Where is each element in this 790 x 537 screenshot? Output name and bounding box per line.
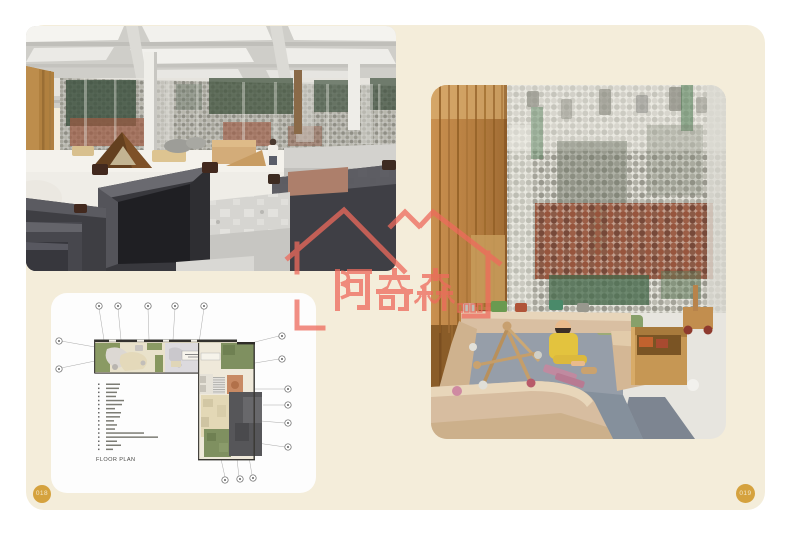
- svg-text:FLOOR PLAN: FLOOR PLAN: [96, 457, 135, 463]
